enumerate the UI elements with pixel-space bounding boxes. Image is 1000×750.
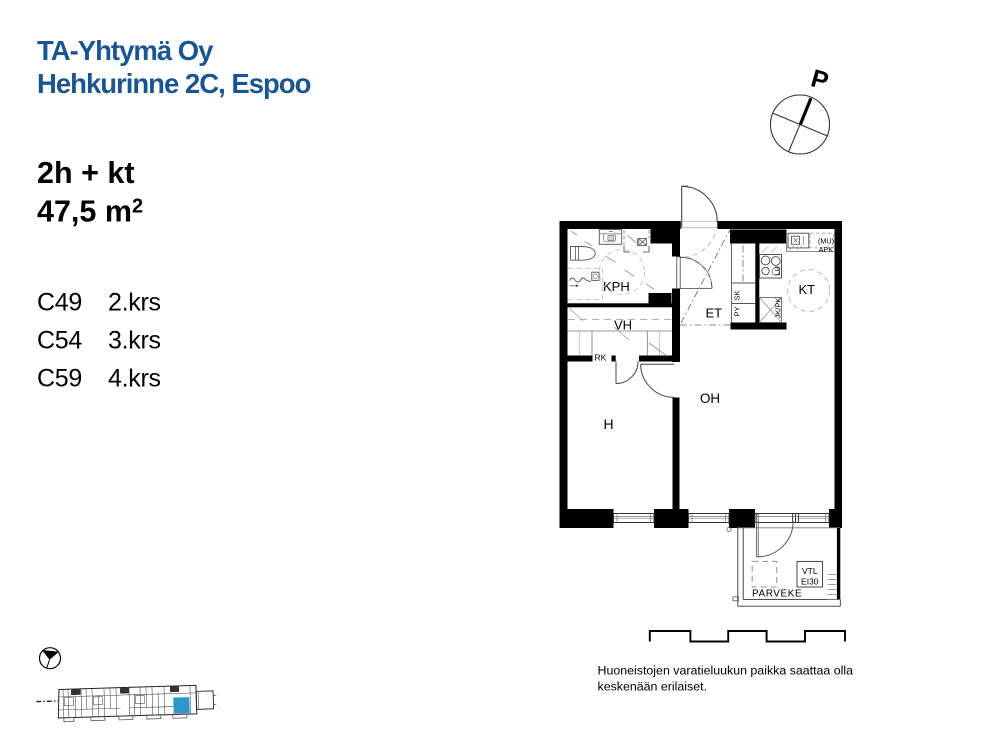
svg-text:4.krs: 4.krs [108, 365, 161, 393]
svg-text:Huoneistojen varatieluukun pai: Huoneistojen varatieluukun paikka saatta… [598, 664, 854, 678]
svg-text:C59: C59 [37, 365, 82, 393]
svg-text:EI30: EI30 [801, 577, 819, 587]
svg-text:LU: LU [773, 266, 782, 276]
svg-text:OH: OH [700, 391, 720, 406]
svg-text:2.krs: 2.krs [108, 289, 161, 317]
svg-text:VTL: VTL [802, 566, 818, 576]
svg-text:RK: RK [595, 353, 607, 363]
svg-text:SK: SK [733, 290, 742, 300]
svg-text:3.krs: 3.krs [108, 327, 161, 355]
svg-text:PY: PY [733, 306, 742, 316]
svg-text:47,5 m2: 47,5 m2 [37, 195, 143, 229]
svg-text:TA-Yhtymä Oy: TA-Yhtymä Oy [37, 35, 214, 66]
svg-text:Hehkurinne 2C, Espoo: Hehkurinne 2C, Espoo [37, 68, 311, 99]
svg-text:C54: C54 [37, 327, 82, 355]
svg-text:ET: ET [706, 306, 723, 321]
svg-text:PARVEKE: PARVEKE [752, 589, 802, 600]
svg-text:KT: KT [799, 282, 816, 297]
svg-text:KPH: KPH [603, 279, 630, 294]
svg-text:APK: APK [819, 245, 834, 254]
svg-text:H: H [604, 416, 614, 432]
svg-text:C49: C49 [37, 289, 82, 317]
svg-text:keskenään erilaiset.: keskenään erilaiset. [598, 680, 708, 694]
svg-text:JK/PK: JK/PK [774, 298, 783, 319]
svg-text:2h + kt: 2h + kt [37, 156, 134, 190]
